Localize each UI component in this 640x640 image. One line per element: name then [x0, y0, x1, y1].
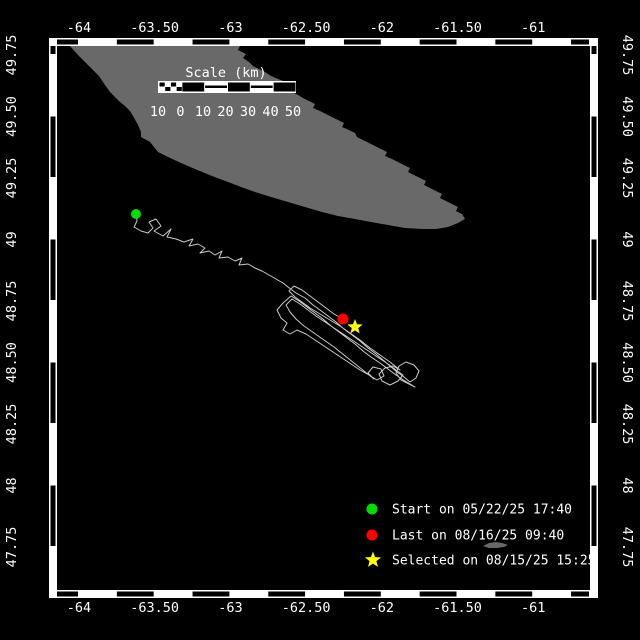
scale-bar-tick-label: 30 — [240, 104, 256, 120]
frame-zebra-cell — [117, 592, 154, 597]
lat-tick-label-left: 49.50 — [4, 96, 20, 137]
scale-bar-segment-stripe — [205, 86, 227, 89]
lat-tick-label-left: 49.25 — [4, 158, 20, 199]
legend-label: Last on 08/16/25 09:40 — [392, 529, 564, 544]
scale-bar-segment — [228, 83, 250, 92]
start-marker[interactable] — [131, 209, 141, 219]
scale-bar-segment — [274, 83, 296, 92]
lon-tick-label-bottom: -62.50 — [282, 600, 331, 616]
frame-zebra-cell — [571, 592, 589, 597]
lat-tick-label-right: 48.75 — [619, 281, 635, 322]
frame-zebra-cell — [571, 40, 589, 45]
scale-bar-checker-cell — [177, 87, 182, 91]
lat-tick-label-left: 49 — [4, 231, 20, 247]
scale-bar-checker-cell — [165, 87, 170, 91]
lat-tick-label-right: 49.75 — [619, 35, 635, 76]
frame-zebra-cell — [57, 40, 78, 45]
legend-dot-icon — [367, 530, 378, 541]
lon-tick-label-bottom: -61 — [521, 600, 545, 616]
scale-bar-tick-label: 0 — [176, 104, 184, 120]
frame-zebra-cell — [344, 592, 381, 597]
lon-tick-label-top: -63 — [218, 20, 242, 36]
frame-zebra-cell — [592, 363, 597, 424]
lat-tick-label-right: 48 — [619, 477, 635, 493]
lon-tick-label-top: -62 — [370, 20, 394, 36]
lat-tick-label-right: 49.25 — [619, 158, 635, 199]
lat-tick-label-left: 48.25 — [4, 404, 20, 445]
scale-bar-checker-cell — [171, 83, 176, 87]
lat-tick-label-left: 47.75 — [4, 527, 20, 568]
last-marker[interactable] — [338, 314, 349, 325]
frame-zebra-cell — [592, 486, 597, 547]
scale-bar-title: Scale (km) — [185, 65, 266, 81]
frame-zebra-cell — [344, 40, 381, 45]
scale-bar-tick-label: 50 — [285, 104, 301, 120]
lon-tick-label-bottom: -63.50 — [130, 600, 179, 616]
scale-bar-tick-label: 10 — [150, 104, 166, 120]
frame-zebra-cell — [51, 117, 56, 178]
lon-tick-label-bottom: -61.50 — [433, 600, 482, 616]
frame-zebra-cell — [495, 592, 532, 597]
tracking-map-window: Scale (km)1001020304050 -64-64-63.50-63.… — [0, 0, 640, 640]
legend-item: Selected on 08/15/25 15:25 — [365, 552, 596, 569]
frame-zebra-cell — [420, 592, 457, 597]
legend: Start on 05/22/25 17:40Last on 08/16/25 … — [365, 503, 596, 569]
frame-zebra-cell — [592, 117, 597, 178]
lon-tick-label-bottom: -63 — [218, 600, 242, 616]
frame-zebra-cell — [193, 592, 230, 597]
frame-zebra-cell — [51, 46, 56, 54]
lon-tick-label-bottom: -62 — [370, 600, 394, 616]
frame-zebra-cell — [268, 40, 305, 45]
frame-zebra-cell — [51, 240, 56, 301]
frame-zebra-cell — [117, 40, 154, 45]
lat-tick-label-left: 48.50 — [4, 342, 20, 383]
legend-label: Start on 05/22/25 17:40 — [392, 503, 572, 518]
legend-item: Last on 08/16/25 09:40 — [367, 529, 565, 544]
frame-zebra-cell — [495, 40, 532, 45]
map-canvas: Scale (km)1001020304050 -64-64-63.50-63.… — [0, 0, 640, 640]
lon-tick-label-top: -63.50 — [130, 20, 179, 36]
scale-bar-checker-cell — [160, 83, 165, 87]
frame-zebra-cell — [57, 592, 78, 597]
scale-bar-tick-label: 40 — [262, 104, 278, 120]
lon-tick-label-top: -62.50 — [282, 20, 331, 36]
lat-tick-label-left: 49.75 — [4, 35, 20, 76]
lat-tick-label-right: 48.25 — [619, 404, 635, 445]
lat-tick-label-right: 49.50 — [619, 96, 635, 137]
frame-zebra-cell — [51, 486, 56, 547]
legend-dot-icon — [367, 504, 378, 515]
frame-zebra-cell — [193, 40, 230, 45]
scale-bar-tick-label: 10 — [195, 104, 211, 120]
legend-item: Start on 05/22/25 17:40 — [367, 503, 573, 518]
lat-tick-label-right: 48.50 — [619, 342, 635, 383]
lon-tick-label-top: -61.50 — [433, 20, 482, 36]
frame-zebra-cell — [268, 592, 305, 597]
frame-zebra-cell — [592, 46, 597, 54]
frame-zebra-cell — [420, 40, 457, 45]
lat-tick-label-left: 48.75 — [4, 281, 20, 322]
lon-tick-label-top: -64 — [67, 20, 91, 36]
lon-tick-label-bottom: -64 — [67, 600, 91, 616]
scale-bar-segment-stripe — [251, 86, 273, 89]
frame-zebra-cell — [51, 363, 56, 424]
map-background — [0, 0, 640, 640]
legend-label: Selected on 08/15/25 15:25 — [392, 554, 596, 569]
lat-tick-label-right: 47.75 — [619, 527, 635, 568]
scale-bar-segment — [182, 83, 204, 92]
lat-tick-label-right: 49 — [619, 231, 635, 247]
frame-zebra-cell — [592, 240, 597, 301]
lat-tick-label-left: 48 — [4, 477, 20, 493]
lon-tick-label-top: -61 — [521, 20, 545, 36]
scale-bar-tick-label: 20 — [217, 104, 233, 120]
